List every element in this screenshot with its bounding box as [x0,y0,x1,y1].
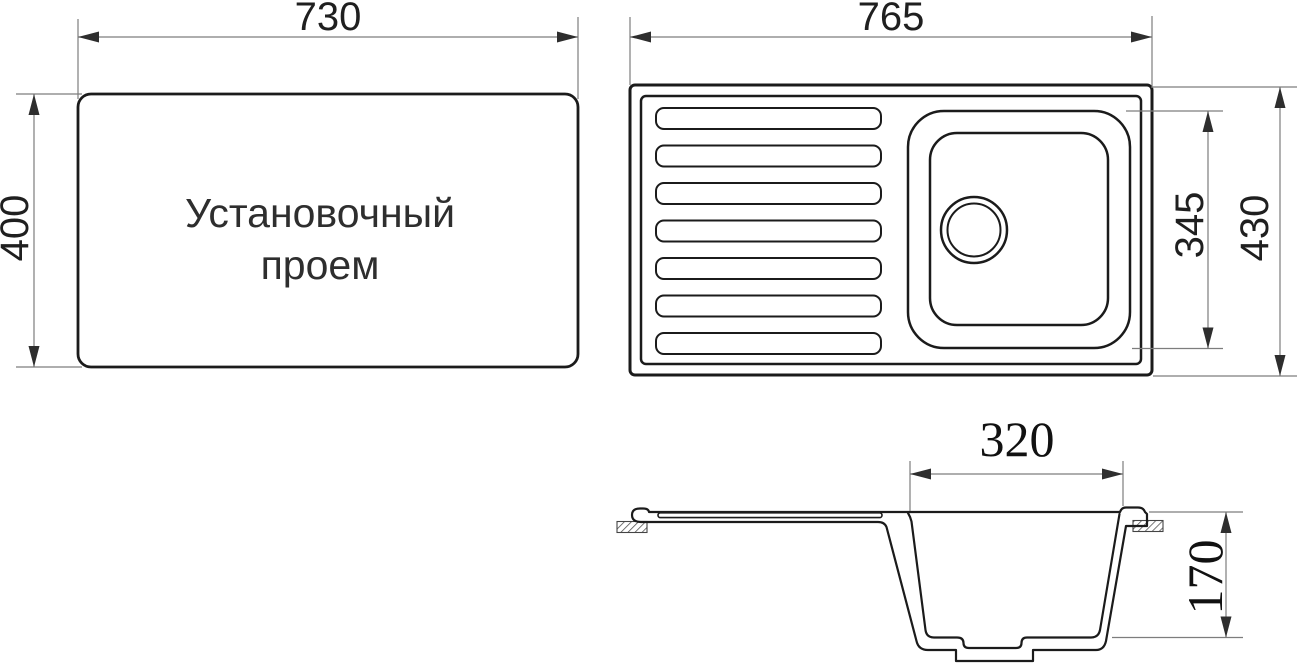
sink-dimension-drawing: Установочный проем 730 400 [0,0,1300,666]
dimension-bowl-height: 170 [1112,512,1243,638]
drain-hole-outer [941,197,1007,263]
dimension-value-765: 765 [858,0,925,39]
drainboard-slat [656,221,881,242]
technical-drawing-page: Установочный проем 730 400 [0,0,1300,666]
sink-bowl-inner [930,133,1108,325]
installation-opening-label-line2: проем [261,242,380,288]
arrowhead-up-icon [1275,87,1286,108]
drainboard-slat [656,296,881,317]
drainboard-slat [656,333,881,354]
arrowhead-right-icon [557,32,578,43]
drain-hole-inner [948,204,1001,257]
drainboard-slat [656,258,881,279]
arrowhead-right-icon [1102,469,1123,480]
arrowhead-up-icon [1221,512,1232,533]
arrowhead-down-icon [29,346,40,367]
dimension-sink-width: 765 [630,0,1152,88]
arrowhead-down-icon [1275,355,1286,376]
arrowhead-up-icon [29,94,40,115]
installation-opening-label-line1: Установочный [185,190,455,236]
dimension-value-430: 430 [1233,195,1277,262]
installation-opening-view: Установочный проем 730 400 [0,0,578,367]
section-drainboard-strip [658,513,882,518]
section-bowl-inner-wall [908,513,1120,648]
dimension-value-170: 170 [1177,540,1233,615]
dimension-value-730: 730 [295,0,362,39]
dimension-bowl-width: 320 [910,411,1123,511]
arrowhead-right-icon [1131,32,1152,43]
dimension-value-345: 345 [1168,192,1212,259]
dimension-value-400: 400 [0,195,37,262]
dimension-installation-height: 400 [0,94,82,367]
arrowhead-up-icon [1203,111,1214,132]
drainboard-slat [656,108,881,129]
countertop-hatch-left [617,522,647,533]
sink-top-view: 765 345 430 [630,0,1297,376]
arrowhead-down-icon [1203,328,1214,349]
arrowhead-left-icon [910,469,931,480]
drainboard-slat [656,183,881,204]
drainboard-slats [656,108,881,354]
arrowhead-down-icon [1221,617,1232,638]
dimension-installation-width: 730 [78,0,578,99]
drainboard-slat [656,146,881,167]
arrowhead-left-icon [630,32,651,43]
arrowhead-left-icon [78,32,99,43]
dimension-value-320: 320 [980,411,1055,467]
sink-section-view: 320 170 [617,411,1243,661]
